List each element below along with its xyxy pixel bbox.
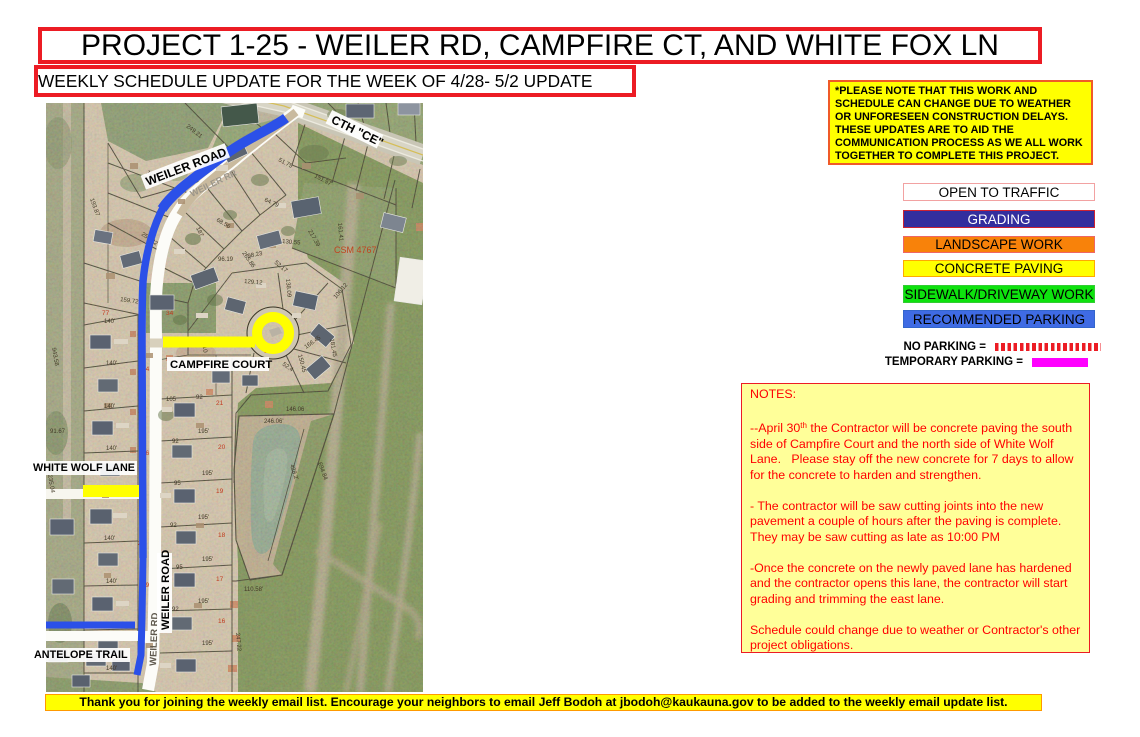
svg-text:140': 140' <box>104 404 115 410</box>
svg-text:140': 140' <box>106 666 117 672</box>
svg-text:95: 95 <box>174 481 181 487</box>
svg-text:CSM 4767: CSM 4767 <box>334 245 377 255</box>
svg-text:140': 140' <box>106 361 117 367</box>
svg-text:195': 195' <box>198 429 209 435</box>
svg-text:140': 140' <box>104 319 115 325</box>
svg-text:195': 195' <box>198 515 209 521</box>
svg-text:246.06': 246.06' <box>264 419 284 425</box>
svg-text:140': 140' <box>104 536 115 542</box>
svg-text:105: 105 <box>166 397 177 403</box>
svg-text:WEILER ROAD: WEILER ROAD <box>160 550 172 630</box>
svg-text:16: 16 <box>218 618 226 625</box>
svg-text:146.06: 146.06 <box>286 407 305 413</box>
svg-text:91.67: 91.67 <box>50 429 66 435</box>
svg-text:92: 92 <box>170 523 177 529</box>
svg-text:92: 92 <box>172 439 179 445</box>
svg-text:195': 195' <box>202 471 213 477</box>
svg-text:19: 19 <box>216 488 224 495</box>
svg-text:34: 34 <box>166 310 174 317</box>
svg-text:17: 17 <box>216 576 224 583</box>
svg-text:20: 20 <box>218 444 226 451</box>
svg-text:92: 92 <box>172 607 179 613</box>
svg-text:140': 140' <box>106 579 117 585</box>
svg-text:CAMPFIRE COURT: CAMPFIRE COURT <box>170 359 272 371</box>
svg-text:92: 92 <box>196 395 203 401</box>
svg-text:195': 195' <box>202 557 213 563</box>
svg-text:96.19: 96.19 <box>218 257 234 263</box>
svg-text:195': 195' <box>198 599 209 605</box>
svg-text:18: 18 <box>218 532 226 539</box>
svg-text:140': 140' <box>106 446 117 452</box>
svg-text:21: 21 <box>216 400 224 407</box>
svg-text:77: 77 <box>102 310 110 317</box>
svg-text:195': 195' <box>202 641 213 647</box>
svg-text:110.58': 110.58' <box>244 587 263 593</box>
svg-text:95: 95 <box>176 565 183 571</box>
